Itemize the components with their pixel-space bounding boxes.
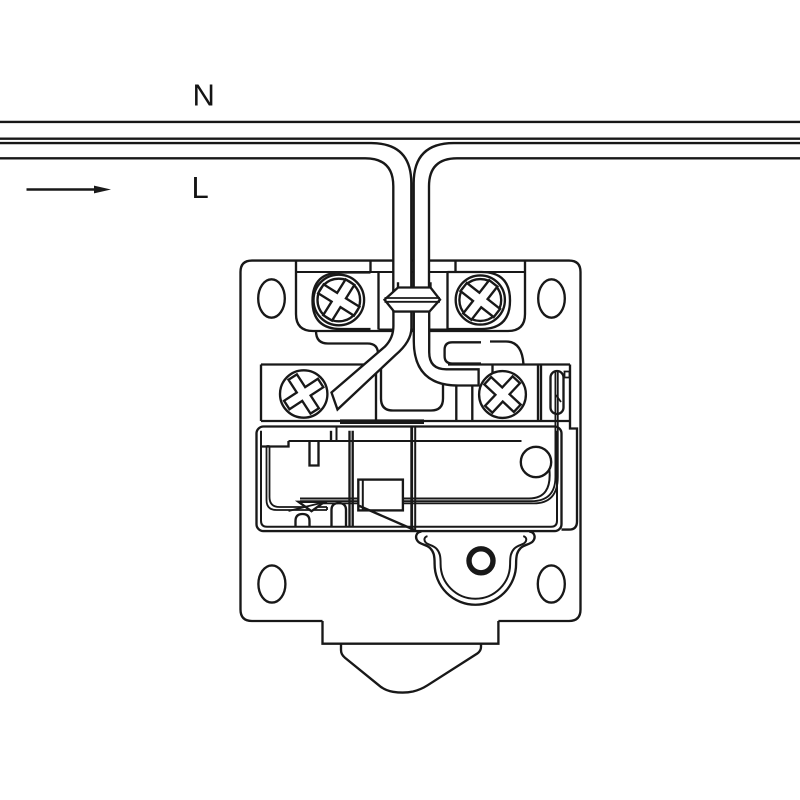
svg-text:L: L <box>192 170 209 205</box>
svg-text:N: N <box>193 78 215 113</box>
